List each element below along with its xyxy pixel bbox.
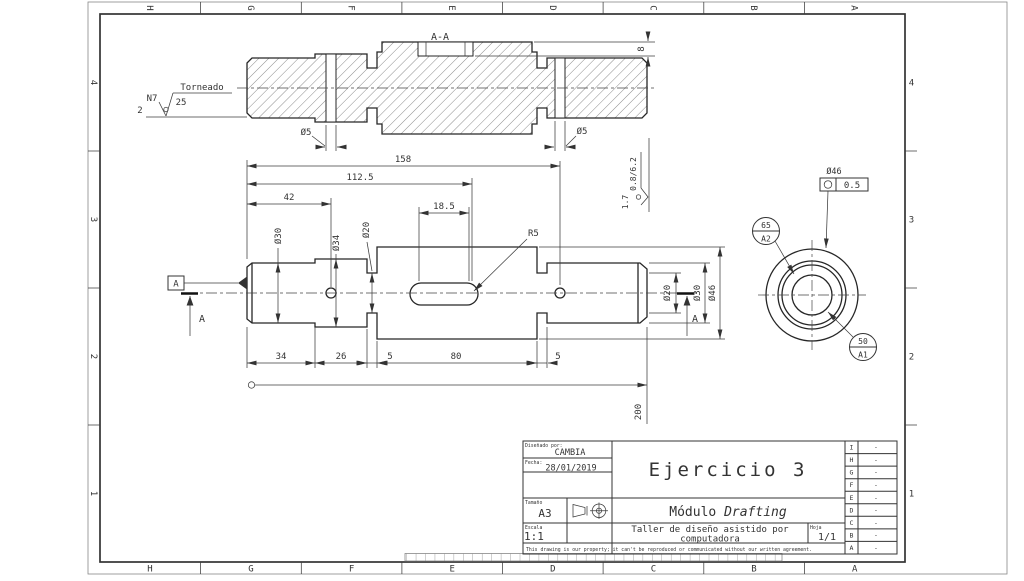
front-view: A A A 158 112.5 42 18.5 <box>168 155 725 424</box>
svg-text:34: 34 <box>276 352 287 362</box>
surface-roughness: 25 <box>176 98 187 108</box>
date-label: Fecha: <box>525 460 542 466</box>
size-label: Tamaño <box>525 500 542 506</box>
drawing-title: Ejercicio 3 <box>649 459 808 481</box>
zone-col-top-b: B <box>748 5 758 10</box>
zone-col-bottom-b: B <box>751 565 756 575</box>
designed-by-value: CAMBIA <box>555 448 586 458</box>
zone-row-left-3: 3 <box>88 217 98 222</box>
rev-row-i: I <box>850 444 854 452</box>
size-value: A3 <box>538 507 551 520</box>
svg-text:Ø30: Ø30 <box>692 285 703 301</box>
dim-42: 42 <box>247 193 331 287</box>
title-block: Diseñado por: CAMBIA Fecha: 28/01/2019 T… <box>523 441 897 554</box>
zone-col-top-c: C <box>647 5 657 10</box>
zone-row-right-4: 4 <box>909 79 914 89</box>
svg-text:Ø5: Ø5 <box>301 127 312 138</box>
zone-col-bottom-a: A <box>852 565 858 575</box>
svg-text:200: 200 <box>634 404 644 420</box>
projection-symbol-icon <box>573 503 608 520</box>
svg-text:-: - <box>874 531 878 539</box>
datum-feature-a: A <box>168 276 247 290</box>
scale-ruler-bar <box>405 554 782 562</box>
end-view: Ø46 0.5 65 A2 50 A1 <box>753 166 877 361</box>
svg-text:A: A <box>199 314 205 325</box>
svg-text:Ø20: Ø20 <box>361 222 372 238</box>
cut-arrow-left: A <box>181 294 205 337</box>
drawing-canvas: H G F E D C B A H G F E D C B A 4 3 2 1 … <box>0 0 1024 576</box>
svg-text:5: 5 <box>387 352 392 362</box>
side-roughness-note: 0.8/6.2 1.7 <box>621 138 649 212</box>
drawing-sheet: H G F E D C B A H G F E D C B A 4 3 2 1 … <box>0 0 1024 576</box>
zone-col-top-g: G <box>245 5 255 10</box>
datum-triangle <box>238 277 247 290</box>
dim-200: 200 <box>248 327 647 424</box>
svg-text:-: - <box>874 494 878 502</box>
rev-row-f: F <box>850 481 854 489</box>
datum-target-a1: 50 A1 <box>828 312 877 361</box>
zone-row-left-2: 2 <box>88 354 98 359</box>
surface-grade: N7 <box>147 94 158 104</box>
zone-row-right-2: 2 <box>909 353 914 363</box>
svg-text:0.5: 0.5 <box>844 181 860 191</box>
description-line1: Taller de diseño asistido por <box>631 525 789 535</box>
svg-text:A1: A1 <box>858 351 868 360</box>
svg-text:Ø20: Ø20 <box>662 285 673 301</box>
svg-text:Ø5: Ø5 <box>577 126 588 137</box>
end-dia-label: Ø46 <box>826 166 841 177</box>
date-value: 28/01/2019 <box>545 464 596 474</box>
svg-text:26: 26 <box>336 352 347 362</box>
surface-finish-note: Torneado 25 N7 2 <box>137 83 247 117</box>
svg-text:8: 8 <box>637 46 647 51</box>
svg-text:-: - <box>874 544 878 552</box>
sheet-value: 1/1 <box>818 532 836 543</box>
svg-text:18.5: 18.5 <box>433 202 455 212</box>
zone-row-right-3: 3 <box>909 216 914 226</box>
rev-row-g: G <box>850 469 854 477</box>
dim-158: 158 <box>247 155 560 285</box>
svg-text:Ø34: Ø34 <box>331 235 342 251</box>
svg-text:A2: A2 <box>761 235 771 244</box>
svg-text:-: - <box>874 456 878 464</box>
rev-row-d: D <box>850 506 854 514</box>
svg-text:-: - <box>874 444 878 452</box>
svg-text:1.7: 1.7 <box>621 195 630 210</box>
zone-col-bottom-c: C <box>651 565 656 575</box>
dim-dia-34: Ø34 <box>331 235 342 327</box>
zone-col-top-h: H <box>144 5 154 10</box>
svg-text:-: - <box>874 469 878 477</box>
drawing-subtitle: Módulo Drafting <box>669 505 787 520</box>
dim-hole-left: Ø5 <box>301 125 345 151</box>
zone-col-top-d: D <box>547 5 557 10</box>
dim-hole-right: Ø5 <box>546 121 587 151</box>
rev-row-b: B <box>850 531 854 539</box>
dim-112-5: 112.5 <box>247 173 472 281</box>
rev-row-c: C <box>850 519 854 527</box>
zone-col-bottom-e: E <box>449 565 454 575</box>
svg-text:5: 5 <box>555 352 560 362</box>
svg-text:R5: R5 <box>528 229 539 239</box>
svg-text:65: 65 <box>761 221 771 230</box>
surface-process: Torneado <box>180 83 223 93</box>
zone-col-bottom-d: D <box>550 565 555 575</box>
section-view-aa: A-A Ø5 Ø5 8 Torneado 25 N <box>137 32 657 212</box>
scale-value: 1:1 <box>524 530 544 543</box>
zone-row-right-1: 1 <box>909 490 914 500</box>
description-line2: computadora <box>680 535 740 545</box>
disclaimer: This drawing is our property; it can't b… <box>526 547 812 553</box>
datum-target-a2: 65 A2 <box>753 218 795 275</box>
svg-text:0.8/6.2: 0.8/6.2 <box>629 157 638 191</box>
svg-text:Ø46: Ø46 <box>707 285 718 301</box>
zone-row-left-4: 4 <box>88 80 98 85</box>
front-keyway-slot <box>410 283 478 305</box>
zone-col-bottom-g: G <box>248 565 253 575</box>
zone-col-top-e: E <box>446 5 456 10</box>
circularity-icon <box>824 181 832 189</box>
zone-col-bottom-h: H <box>147 565 152 575</box>
svg-text:50: 50 <box>858 337 868 346</box>
svg-text:80: 80 <box>451 352 462 362</box>
zone-col-bottom-f: F <box>349 565 354 575</box>
rev-row-h: H <box>850 456 854 464</box>
sheet-label: Hoja <box>810 525 822 531</box>
surface-count: 2 <box>137 106 142 116</box>
dim-dia-30-left: Ø30 <box>273 228 284 323</box>
svg-text:158: 158 <box>395 155 411 165</box>
zone-row-left-1: 1 <box>88 491 98 496</box>
rev-row-a: A <box>850 544 854 552</box>
dim-chain: 34 26 5 80 5 <box>247 327 561 368</box>
svg-text:-: - <box>874 481 878 489</box>
svg-text:112.5: 112.5 <box>346 173 373 183</box>
zone-col-top-a: A <box>849 5 859 11</box>
svg-text:42: 42 <box>284 193 295 203</box>
dim-18-5: 18.5 <box>419 202 469 281</box>
svg-text:-: - <box>874 506 878 514</box>
svg-text:Ø30: Ø30 <box>273 228 284 244</box>
svg-text:-: - <box>874 519 878 527</box>
zone-col-top-f: F <box>346 5 356 10</box>
datum-label: A <box>173 280 179 290</box>
circularity-callout: Ø46 0.5 <box>820 166 868 248</box>
dim-r5: R5 <box>474 229 539 291</box>
rev-row-e: E <box>850 494 854 502</box>
